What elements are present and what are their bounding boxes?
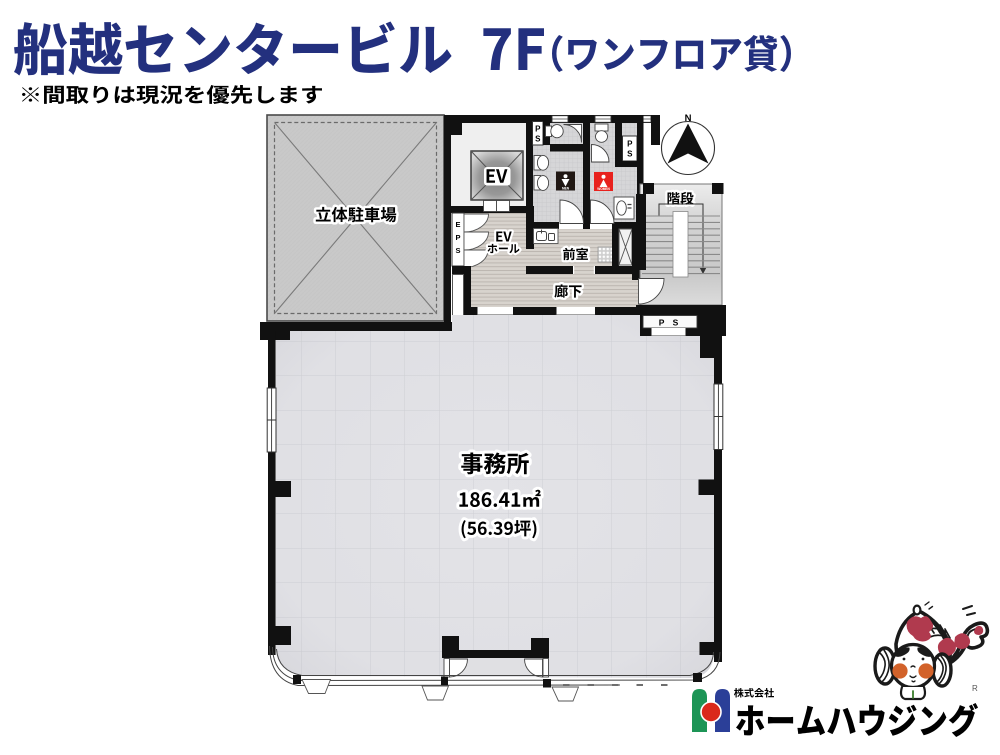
svg-text:WOMEN: WOMEN [597, 187, 610, 191]
svg-text:P: P [627, 140, 633, 149]
svg-text:N: N [685, 113, 692, 124]
svg-text:P: P [455, 233, 460, 242]
svg-text:P: P [535, 125, 541, 134]
svg-text:MEN: MEN [562, 186, 570, 190]
svg-text:E: E [455, 220, 460, 229]
svg-text:S: S [455, 246, 460, 255]
svg-text:S: S [535, 135, 541, 144]
svg-text:R: R [972, 684, 978, 693]
svg-text:P S: P S [659, 317, 682, 327]
svg-text:S: S [627, 150, 633, 159]
